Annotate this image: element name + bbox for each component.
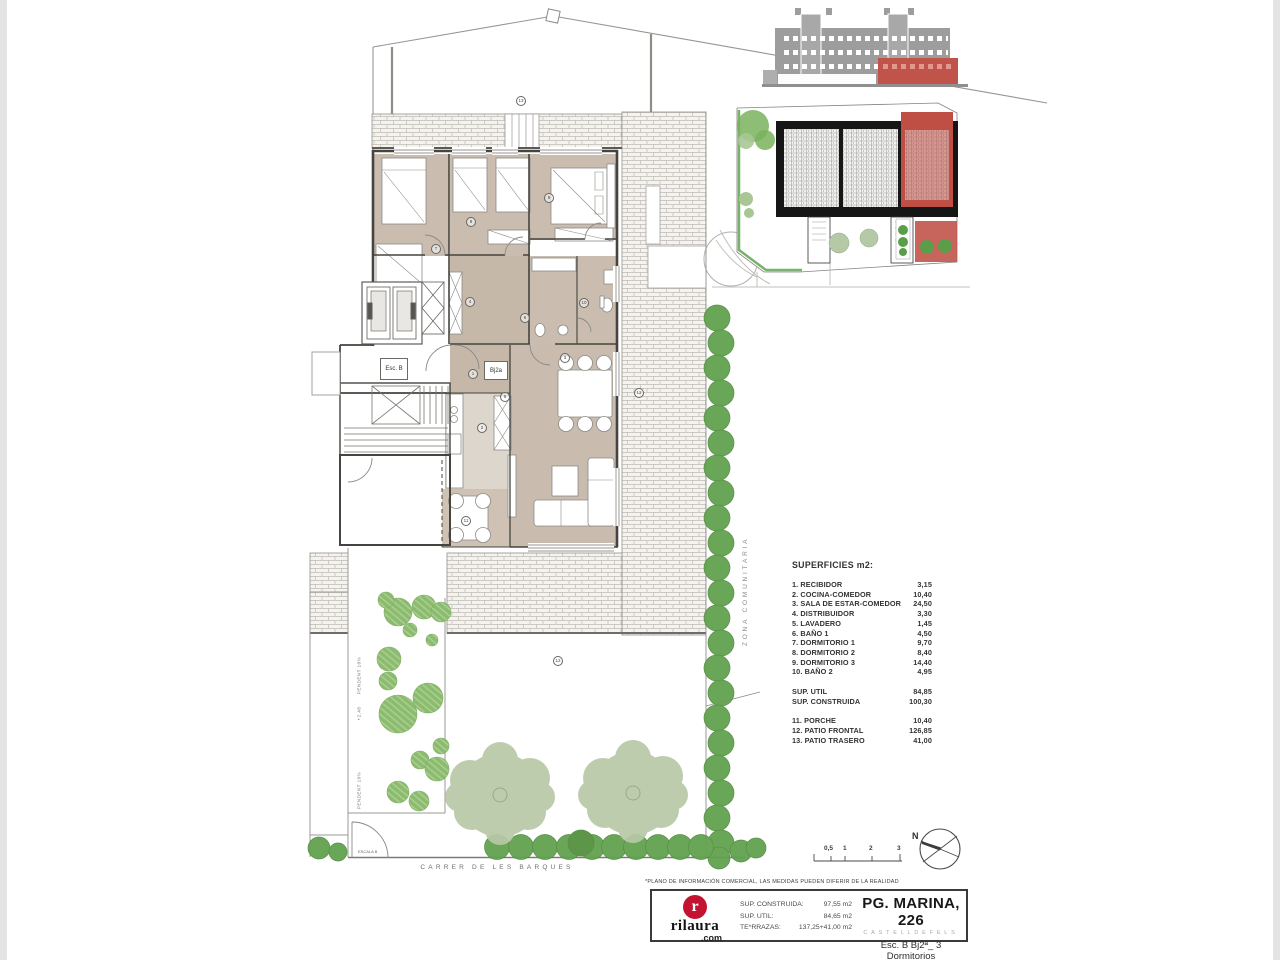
- scalebar: [814, 854, 902, 861]
- gate-label: ESCALA B: [358, 849, 377, 854]
- plan-drawing: [0, 0, 1280, 960]
- title-block: r rilaura .com SUP. CONSTRUIDA:97,55 m2S…: [650, 889, 968, 942]
- logo-name: rilaura: [652, 919, 738, 934]
- rear-steps: [505, 114, 539, 148]
- room-number-marker: 3: [560, 353, 570, 363]
- superficies-row: 9. DORMITORIO 314,40: [792, 658, 932, 668]
- superficies-row: 2. COCINA-COMEDOR10,40: [792, 590, 932, 600]
- superficies-table: SUPERFICIES m2: 1. RECIBIDOR3,152. COCIN…: [792, 560, 932, 756]
- trees: [445, 740, 688, 845]
- room-number-marker: 8: [466, 217, 476, 227]
- logo-tld: .com: [652, 934, 738, 943]
- superficies-row: 4. DISTRIBUIDOR3,30: [792, 609, 932, 619]
- footer-metric-row: SUP. UTIL:84,65 m2: [740, 911, 852, 923]
- street-label: CARRER DE LES BARQUES: [393, 864, 601, 871]
- room-number-marker: 10: [579, 298, 589, 308]
- unit-label-box: Bj2a: [484, 361, 508, 380]
- superficies-row: 6. BAÑO 14,50: [792, 629, 932, 639]
- unit-description: Esc. B Bj2ª_ 3 Dormitorios: [856, 940, 966, 960]
- footer-metrics: SUP. CONSTRUIDA:97,55 m2SUP. UTIL:84,65 …: [738, 891, 856, 940]
- superficies-row: 13. PATIO TRASERO41,00: [792, 736, 932, 746]
- room-number-marker: 13: [516, 96, 526, 106]
- room-number-marker: 1: [468, 369, 478, 379]
- superficies-totals: SUP. UTIL84,85SUP. CONSTRUIDA100,30: [792, 687, 932, 706]
- floorplan-page: Esc. B Bj2a ZONA COMUNITARIA CARRER DE L…: [0, 0, 1280, 960]
- project-city: CASTELLDEFELS: [856, 930, 966, 936]
- footer-metric-row: TE*RRAZAS:137,25+41,00 m2: [740, 922, 852, 934]
- room-number-marker: 6: [520, 313, 530, 323]
- superficies-title: SUPERFICIES m2:: [792, 560, 932, 570]
- room-number-marker: 5: [500, 392, 510, 402]
- north-compass: [920, 829, 960, 869]
- disclaimer-text: *PLANO DE INFORMACIÓN COMERCIAL, LAS MED…: [645, 879, 899, 885]
- page-edge-right: [1273, 0, 1280, 960]
- north-label: N: [912, 831, 919, 841]
- room-number-marker: 9: [544, 193, 554, 203]
- superficies-row: 1. RECIBIDOR3,15: [792, 580, 932, 590]
- superficies-row: SUP. CONSTRUIDA100,30: [792, 697, 932, 707]
- superficies-row: 8. DORMITORIO 28,40: [792, 648, 932, 658]
- superficies-row: 10. BAÑO 24,95: [792, 667, 932, 677]
- room-number-marker: 11: [461, 516, 471, 526]
- room-number-marker: 4: [465, 297, 475, 307]
- footer-metric-row: SUP. CONSTRUIDA:97,55 m2: [740, 899, 852, 911]
- scalebar-label: 2: [869, 845, 873, 852]
- superficies-exterior: 11. PORCHE10,4012. PATIO FRONTAL126,8513…: [792, 716, 932, 745]
- logo: r rilaura .com: [652, 891, 738, 940]
- building-elevation: [762, 8, 968, 87]
- superficies-row: 5. LAVADERO1,45: [792, 619, 932, 629]
- side-porch: [312, 352, 340, 395]
- ramp-lower-label: PENDENT 10%: [357, 761, 362, 821]
- scalebar-label: 1: [843, 845, 847, 852]
- bushes: [377, 592, 451, 811]
- superficies-rooms: 1. RECIBIDOR3,152. COCINA-COMEDOR10,403.…: [792, 580, 932, 677]
- page-edge-left: [0, 0, 7, 960]
- scalebar-label: 3: [897, 845, 901, 852]
- zona-comunitaria-label: ZONA COMUNITARIA: [742, 474, 749, 646]
- room-number-marker: 12: [553, 656, 563, 666]
- footer-title-col: PG. MARINA, 226 CASTELLDEFELS Esc. B Bj2…: [856, 891, 966, 940]
- superficies-row: SUP. UTIL84,85: [792, 687, 932, 697]
- superficies-row: 7. DORMITORIO 19,70: [792, 638, 932, 648]
- rilaura-logo-icon: r: [683, 895, 707, 919]
- unit-label: Bj2a: [490, 368, 502, 374]
- ramp-level-label: +2.48: [357, 684, 362, 744]
- room-number-marker: 2: [477, 423, 487, 433]
- project-title: PG. MARINA, 226: [856, 895, 966, 929]
- scalebar-label: 0,5: [824, 845, 833, 852]
- superficies-row: 3. SALA DE ESTAR-COMEDOR24,50: [792, 599, 932, 609]
- superficies-row: 11. PORCHE10,40: [792, 716, 932, 726]
- room-number-marker: 7: [431, 244, 441, 254]
- site-plan: [712, 103, 970, 287]
- superficies-row: 12. PATIO FRONTAL126,85: [792, 726, 932, 736]
- room-number-marker: 12: [634, 388, 644, 398]
- stairwell-label: Esc. B: [385, 366, 402, 372]
- logo-initial: r: [691, 898, 698, 916]
- stairwell-label-box: Esc. B: [380, 358, 408, 380]
